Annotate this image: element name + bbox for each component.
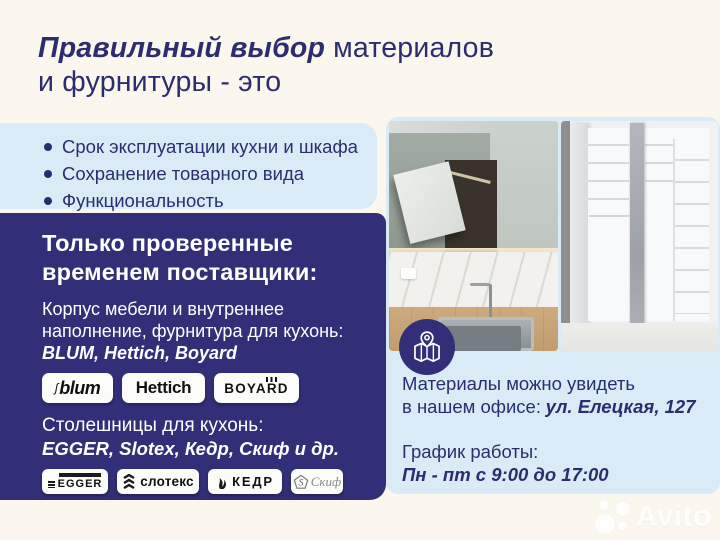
bullet-icon [44,197,52,205]
office-address-prefix: в нашем офисе: [402,396,541,417]
skif-pentagon-icon: S [293,474,309,490]
boyard-castle-icon [266,377,277,382]
egger-board-icon [59,473,101,477]
wardrobe-shelf-column [674,139,709,314]
wardrobe-photo [561,121,718,351]
wardrobe-open-door [570,123,587,344]
kitchen-faucet-arm [470,283,490,286]
title-line-1: Правильный выборматериалов [38,31,494,65]
skif-wordmark: Скиф [311,474,341,490]
boyard-logo-badge: BOYARD [214,373,299,403]
list-item: Срок эксплуатации кухни и шкафа [44,133,377,160]
wardrobe-mirror-door [630,123,644,346]
office-line-1: Материалы можно увидеть [402,372,695,395]
suppliers-heading: Только проверенные временем поставщики: [42,229,386,287]
kedr-wordmark: КЕДР [232,474,274,489]
boyard-wordmark: BOYARD [224,381,288,396]
title-tail: материалов [333,32,494,64]
office-info: Материалы можно увидеть в нашем офисе:ул… [402,372,695,486]
office-address: ул. Елецкая, 127 [546,396,696,417]
kedr-flame-icon [216,474,228,490]
schedule-value: Пн - пт с 9:00 до 17:00 [402,463,695,486]
blum-wordmark: blum [59,378,100,399]
wardrobe-floor [561,323,718,351]
hardware-brand-badges: ʃ blum Hettich BOYARD [42,373,386,403]
list-item: Сохранение товарного вида [44,160,377,187]
ad-banner: Правильный выборматериалов и фурнитуры -… [0,0,720,540]
kitchen-faucet [489,284,492,319]
egger-logo-badge: EGGER [42,469,108,494]
hettich-logo-badge: Hettich [122,373,205,403]
wardrobe-divider [673,139,675,321]
schedule-label: График работы: [402,440,695,463]
kitchen-sink-basin [446,326,520,351]
suppliers-panel: Только проверенные временем поставщики: … [0,213,386,500]
wardrobe-hanging-rod [589,215,628,217]
blum-logo-badge: ʃ blum [42,373,113,403]
egger-e-icon [48,481,55,488]
wardrobe-shelves-top-left [588,128,630,202]
blum-clip-icon: ʃ [55,381,59,395]
countertop-brand-badges: EGGER слотекс КЕДР S [42,469,386,494]
title-emphasis: Правильный выбор [38,32,325,64]
kitchen-marble-backsplash [389,252,558,310]
benefit-label: Функциональность [62,190,224,212]
slotex-chevrons-icon [122,474,136,490]
kitchen-outlet [401,268,416,279]
list-item: Функциональность [44,187,377,214]
slotex-logo-badge: слотекс [117,469,199,494]
hettich-wordmark: Hettich [136,378,192,398]
kedr-logo-badge: КЕДР [208,469,282,494]
bullet-icon [44,170,52,178]
svg-text:S: S [298,477,303,488]
page-title: Правильный выборматериалов и фурнитуры -… [38,31,494,99]
title-line-2: и фурнитуры - это [38,65,494,99]
map-location-badge [399,319,455,375]
avito-logo-icon [595,499,631,535]
benefit-label: Срок эксплуатации кухни и шкафа [62,136,358,158]
benefits-panel: Срок эксплуатации кухни и шкафа Сохранен… [0,123,377,209]
countertops-brands: EGGER, Slotex, Кедр, Скиф и др. [42,437,386,460]
suppliers-heading-line1: Только проверенные [42,229,386,258]
kitchen-cabinet-right [487,121,558,252]
avito-wordmark: Avito [636,500,712,534]
wardrobe-wall [561,121,570,351]
wardrobe-shelves-top-right [645,128,673,188]
suppliers-intro-line2: наполнение, фурнитура для кухонь: [42,320,386,342]
map-pin-icon [410,330,444,364]
slotex-wordmark: слотекс [140,474,193,489]
benefit-label: Сохранение товарного вида [62,163,304,185]
suppliers-intro: Корпус мебели и внутреннее наполнение, ф… [42,298,386,364]
skif-logo-badge: S Скиф [291,469,343,494]
bullet-icon [44,143,52,151]
egger-wordmark: EGGER [58,478,103,490]
egger-wordmark-row: EGGER [48,478,103,490]
suppliers-heading-line2: временем поставщики: [42,258,386,287]
hardware-brands: BLUM, Hettich, Boyard [42,342,386,364]
countertops-label: Столешницы для кухонь: [42,414,386,437]
kitchen-photo [389,121,558,351]
suppliers-intro-line1: Корпус мебели и внутреннее [42,298,386,320]
avito-watermark: Avito [595,499,712,535]
office-line-2: в нашем офисе:ул. Елецкая, 127 [402,395,695,418]
